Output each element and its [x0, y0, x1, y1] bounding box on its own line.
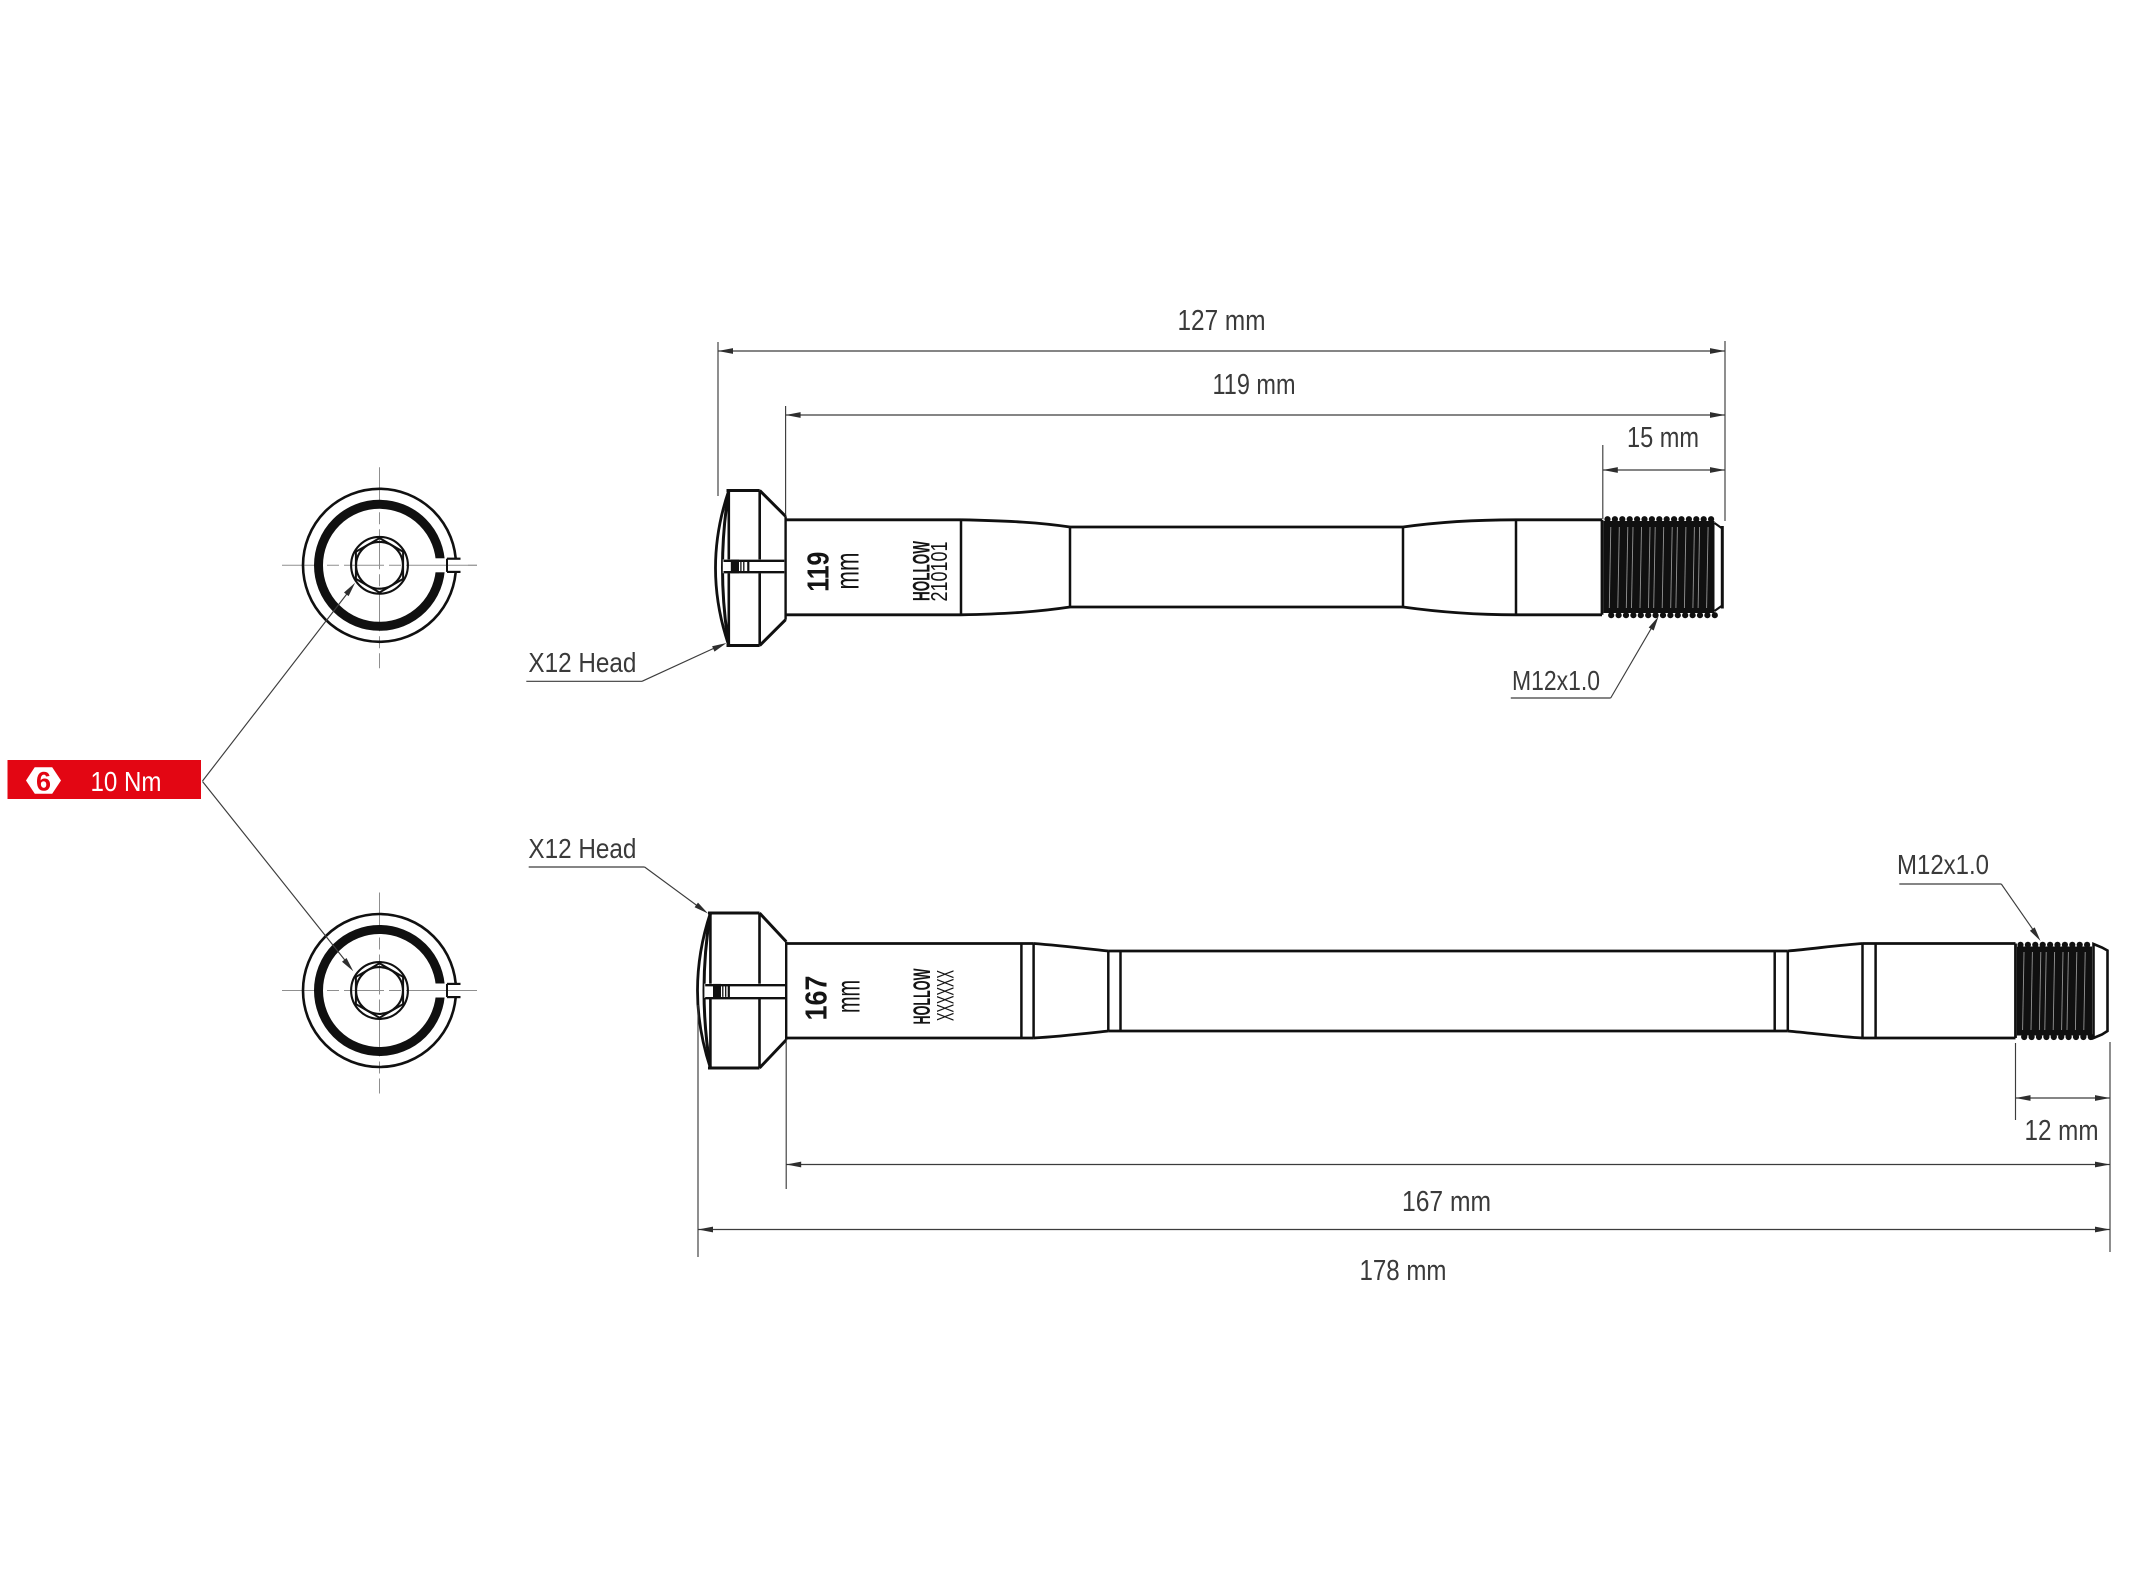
svg-text:X12 Head: X12 Head: [528, 833, 636, 864]
svg-text:mm: mm: [829, 553, 866, 590]
svg-text:127 mm: 127 mm: [1178, 305, 1266, 337]
svg-text:M12x1.0: M12x1.0: [1897, 849, 1989, 880]
svg-text:M12x1.0: M12x1.0: [1512, 665, 1600, 696]
svg-text:XXXXXX: XXXXXX: [933, 970, 960, 1021]
svg-text:6: 6: [36, 767, 51, 797]
svg-text:X12 Head: X12 Head: [528, 647, 636, 678]
svg-text:12 mm: 12 mm: [2025, 1115, 2099, 1147]
svg-text:15 mm: 15 mm: [1627, 422, 1699, 454]
svg-text:mm: mm: [830, 980, 867, 1013]
svg-text:119 mm: 119 mm: [1213, 369, 1296, 401]
svg-text:167 mm: 167 mm: [1402, 1186, 1491, 1218]
svg-text:178 mm: 178 mm: [1360, 1255, 1447, 1287]
svg-text:210101: 210101: [926, 542, 952, 602]
svg-text:167: 167: [799, 976, 834, 1021]
svg-text:10 Nm: 10 Nm: [91, 766, 162, 797]
